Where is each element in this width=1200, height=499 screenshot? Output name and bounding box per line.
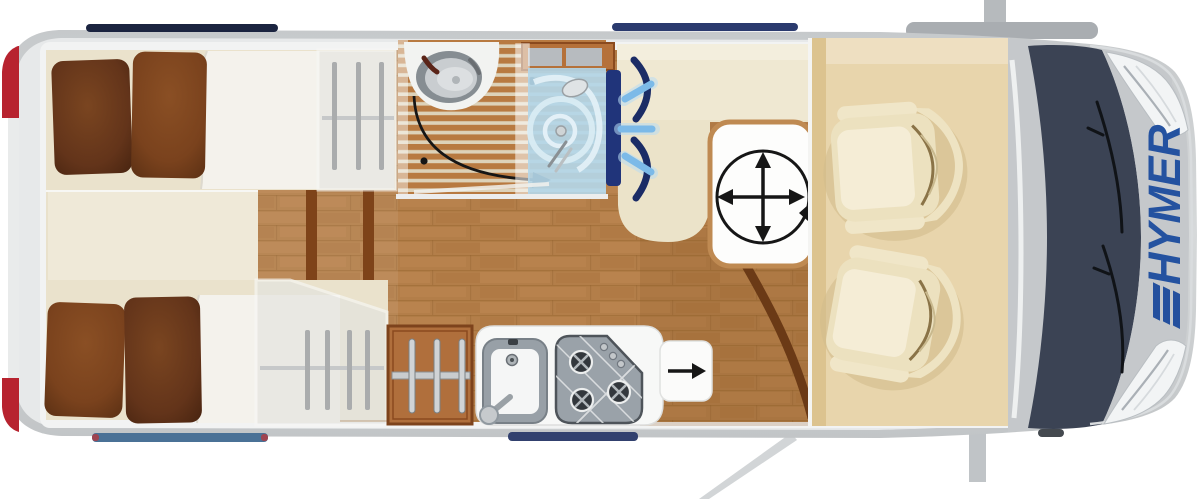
svg-text:HYMER: HYMER: [1139, 124, 1190, 285]
